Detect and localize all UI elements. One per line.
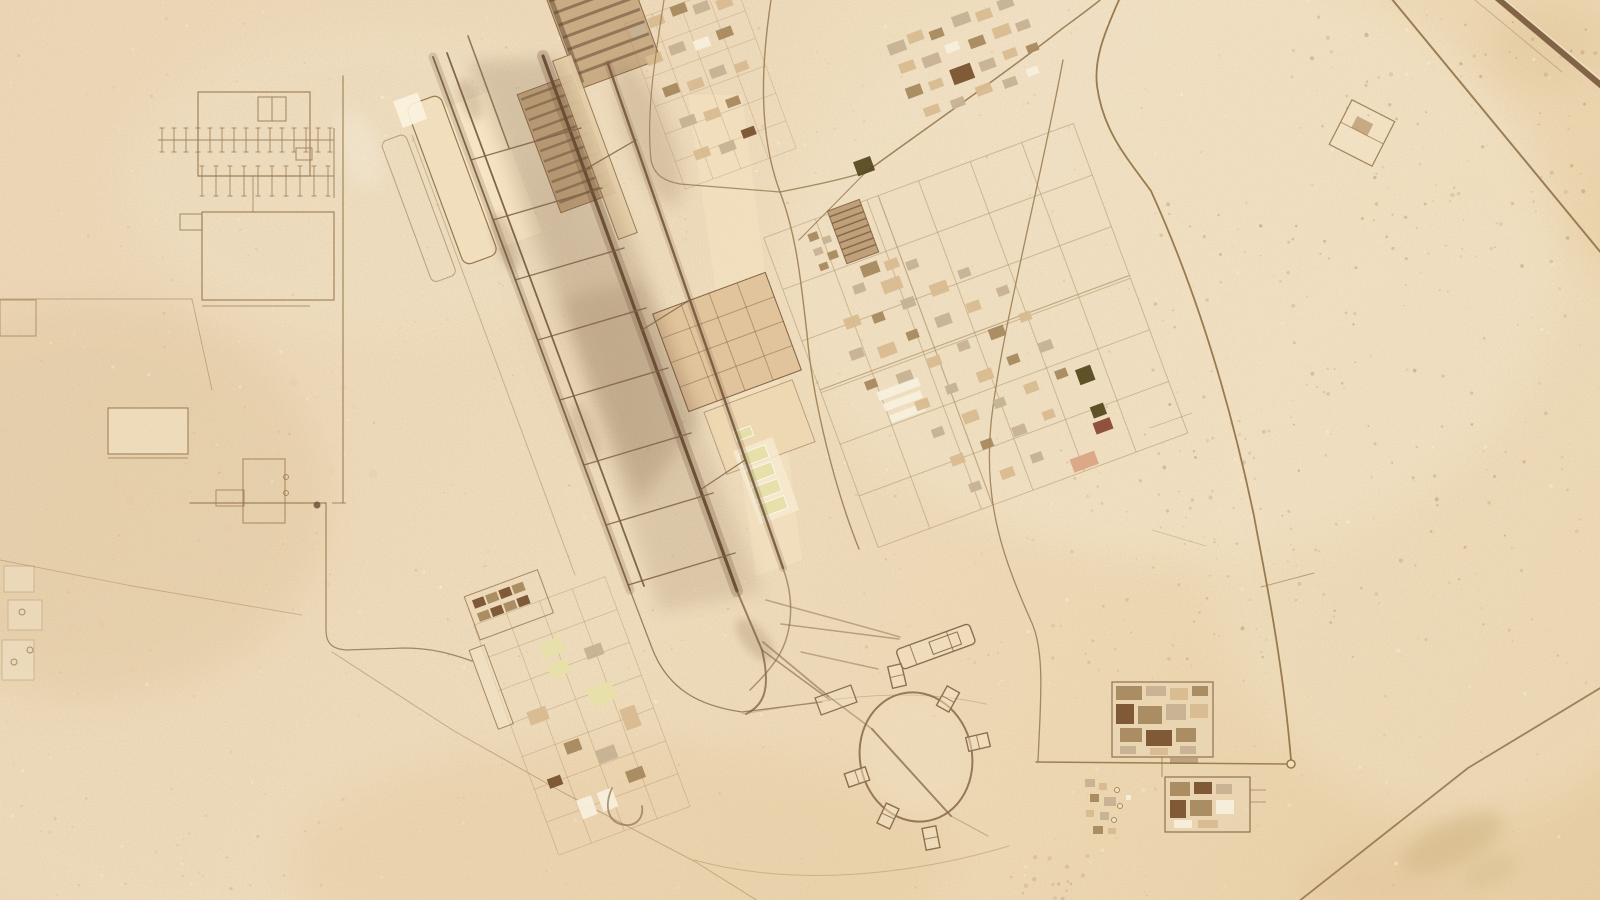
satellite-image: Satellite image of a desert airbase xyxy=(0,0,1600,900)
screenshot-root: Satellite image of a desert airbase xyxy=(0,0,1600,900)
scene-root xyxy=(0,0,1600,900)
